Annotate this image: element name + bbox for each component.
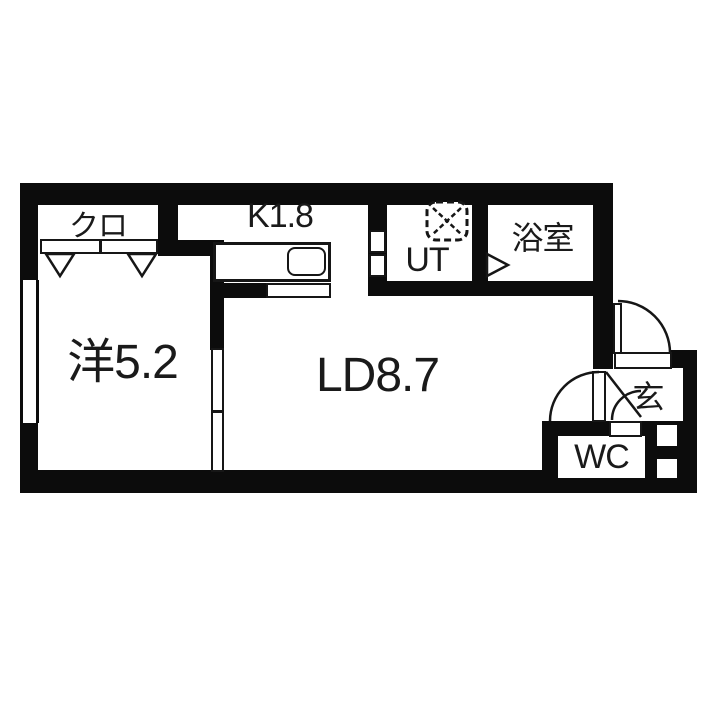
entrance-label: 玄	[632, 372, 663, 418]
living-dining-label: LD8.7	[295, 344, 460, 406]
wall-entry-right	[683, 350, 697, 492]
wc-door-leaf	[609, 421, 642, 437]
washing-machine-x-line-1	[433, 208, 461, 234]
kitchen-counter-lower	[266, 283, 331, 298]
bathroom-door-triangle	[487, 254, 508, 276]
washing-machine-x-line-2	[433, 208, 461, 234]
utility-label: UT	[393, 240, 461, 280]
wall-closet-bar	[158, 240, 214, 256]
entrance-room: 玄	[613, 368, 683, 421]
wall-left-upper	[20, 183, 38, 280]
wall-right-upper	[593, 183, 613, 369]
front-door-leaf	[613, 303, 622, 354]
utility-door-panel-upper	[369, 230, 386, 253]
closet-room: クロ	[38, 205, 158, 240]
ld-door-leaf	[592, 371, 606, 422]
wall-under-ut-bath	[368, 281, 613, 296]
sliding-door-divider	[212, 410, 223, 413]
toilet-label: WC	[574, 438, 629, 477]
sliding-door-western-ld	[211, 348, 224, 472]
closet-door-triangle-left	[46, 254, 74, 276]
front-doorway	[614, 352, 672, 369]
entrance-step-lower	[657, 459, 677, 478]
closet-door-triangle-right	[128, 254, 156, 276]
washing-machine-placement-icon	[427, 202, 467, 240]
front-door-swing-arc	[618, 301, 670, 353]
closet-label: クロ	[69, 201, 127, 245]
utility-door-panel-lower	[369, 254, 386, 277]
closet-door-divider	[99, 240, 102, 253]
kitchen-sink	[287, 247, 326, 276]
entrance-step-upper	[657, 425, 677, 446]
wall-under-counter	[210, 283, 268, 298]
wall-utility-bath	[472, 203, 488, 282]
bathroom-label: 浴室	[495, 216, 590, 256]
kitchen-label: K1.8	[225, 196, 335, 236]
floor-plan: クロ K1.8 UT 浴室 洋5.2 LD8.7 玄 WC	[0, 0, 720, 720]
window-left	[20, 280, 39, 423]
western-room-label: 洋5.2	[50, 326, 195, 388]
toilet-room: WC	[558, 436, 645, 478]
closet-sliding-door	[40, 239, 158, 254]
wall-left-lower	[20, 423, 38, 472]
